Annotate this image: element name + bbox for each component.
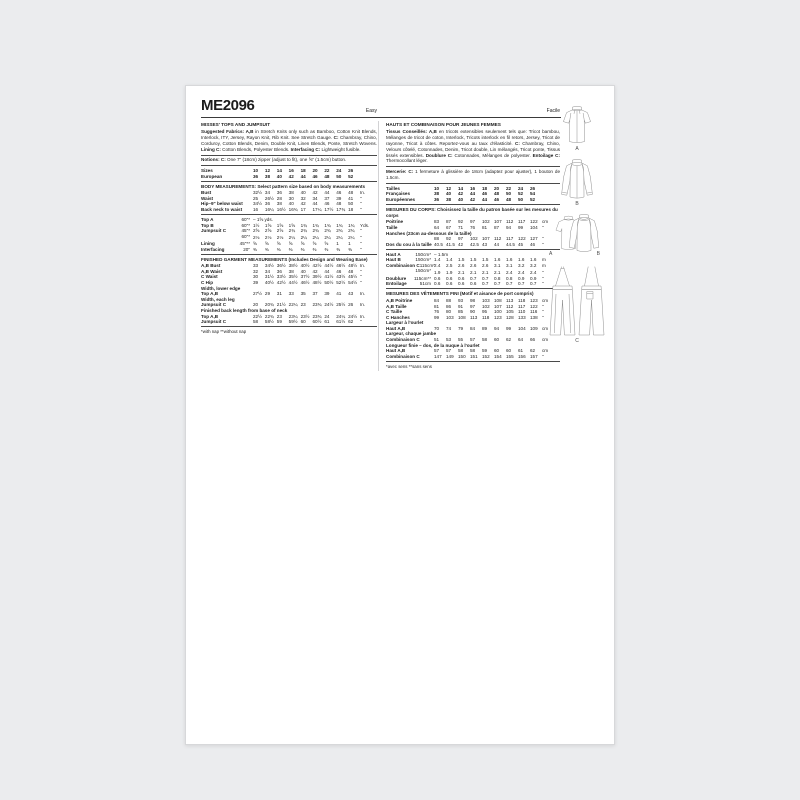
table-cell: 2¾ <box>324 228 336 234</box>
table-cell: 52 <box>348 174 360 180</box>
table-cell: 152 <box>482 354 494 360</box>
table-cell: ⅜ <box>277 247 289 253</box>
table-cell: ⅜ <box>324 247 336 253</box>
unit-cell: " <box>360 228 377 234</box>
table-cell: 2.6 <box>482 263 494 269</box>
table-cell: 0.7 <box>530 281 542 287</box>
table-cell: 147 <box>434 354 446 360</box>
table-cell: 156 <box>518 354 530 360</box>
table-cell: 48 <box>506 197 518 203</box>
row-label-area: Entoilage51cm <box>386 281 434 287</box>
section-rule <box>386 249 560 250</box>
text-run: Cotton Blends, Polyester Blends. <box>221 147 291 152</box>
table-cell: 46 <box>530 242 542 248</box>
yardage-table-english: Top A60"*– 1⅝ yds.Top B60"*1½1⅝1⅝1⅝1¾1¾1… <box>201 217 377 252</box>
table-cell: 0.6 <box>446 281 458 287</box>
bold-lead-in: Notions: C: <box>201 157 226 162</box>
table-row: Jumpsuit C5858½5959½6060½6161½62" <box>201 319 377 325</box>
table-cell: 16 <box>253 207 265 213</box>
table-cell: 50 <box>518 197 530 203</box>
row-label: Combinaison C <box>386 354 420 360</box>
fabric-width-label: 20" <box>243 247 253 253</box>
table-cell: 42.5 <box>470 242 482 248</box>
view-c-label: C <box>546 338 608 344</box>
bold-lead-in: Doublure C: <box>426 153 453 158</box>
section-rule <box>386 288 560 289</box>
garment-title-english: MISSES' TOPS AND JUMPSUIT <box>201 122 377 128</box>
table-cell: 3.2 <box>530 263 542 269</box>
finished-measurements-heading-french: MESURES DES VÊTEMENTS FINI (Motif et ais… <box>386 291 560 297</box>
table-row: Back neck to waist1616¼16½16¾1717¼17½17¾… <box>201 207 377 213</box>
row-label-area: Interfacing20" <box>201 247 253 253</box>
table-cell: 46 <box>494 197 506 203</box>
table-cell: 60½ <box>312 319 324 325</box>
table-cell: 17¾ <box>336 207 348 213</box>
row-label: Jumpsuit C <box>201 319 226 325</box>
row-label-area: European <box>201 174 253 180</box>
section-rule <box>201 254 377 255</box>
difficulty-label-french: Facile <box>386 108 560 114</box>
table-cell: 38 <box>446 197 458 203</box>
section-rule <box>386 166 560 167</box>
table-cell: 2¾ <box>312 228 324 234</box>
text-run: Thermocollant léger. <box>386 158 428 163</box>
difficulty-label-english: Easy <box>201 108 377 114</box>
table-row: Européennes363840424446485052 <box>386 197 560 203</box>
bold-lead-in: Interfacing C: <box>291 147 321 152</box>
table-cell: 0.7 <box>518 281 530 287</box>
table-cell: 2⅝ <box>277 228 289 234</box>
table-cell: 38 <box>265 174 277 180</box>
bold-lead-in: Mercerie: C: <box>386 169 413 174</box>
column-divider <box>378 121 379 371</box>
table-cell: 50 <box>336 174 348 180</box>
row-label: Dos du cou à la taille <box>386 242 432 248</box>
notions-english: Notions: C: One 7" (18cm) zipper (adjust… <box>201 157 377 163</box>
fabric-width-label: 51cm <box>420 281 434 287</box>
table-cell: 44 <box>482 197 494 203</box>
notions-french: Mercerie: C: 1 fermeture à glissière de … <box>386 169 560 181</box>
table-cell: 36 <box>253 174 265 180</box>
section-rule <box>386 204 560 205</box>
table-cell: 0.6 <box>434 281 446 287</box>
table-cell: 52 <box>530 197 542 203</box>
finished-measurements-table-english: A,B Bust3334½36½38½40½42½44½46½48½In.A,B… <box>201 263 377 325</box>
table-cell: 3.1 <box>494 263 506 269</box>
row-label-area: 150cm* <box>386 268 434 274</box>
table-cell: 40 <box>458 197 470 203</box>
table-cell: 43 <box>482 242 494 248</box>
table-cell: 17½ <box>324 207 336 213</box>
table-cell: 17¼ <box>312 207 324 213</box>
table-cell: 154 <box>494 354 506 360</box>
table-cell: 41.5 <box>446 242 458 248</box>
text-run: One 7" (18cm) zipper (adjust to fit), on… <box>226 157 346 162</box>
table-cell: 2¾ <box>289 228 301 234</box>
text-run: 1 fermeture à glissière de 18cm (adaptez… <box>386 169 560 180</box>
table-cell: 0.6 <box>458 281 470 287</box>
table-cell: 17 <box>301 207 313 213</box>
unit-cell: " <box>360 319 377 325</box>
table-cell: 58 <box>253 319 265 325</box>
table-cell: 2.4 <box>434 263 446 269</box>
suggested-fabrics-english: Suggested Fabrics: A,B in Stretch Knits … <box>201 129 377 153</box>
yardage-table-french: Haut A150cm*– 1.5mHaut B150cm*1.41.41.51… <box>386 252 560 287</box>
body-measurements-heading-english: BODY MEASUREMENTS: Select pattern size b… <box>201 184 377 190</box>
table-cell: 155 <box>506 354 518 360</box>
table-cell: 42 <box>289 174 301 180</box>
section-rule <box>201 326 377 327</box>
garment-line-drawings: A B <box>546 104 608 344</box>
table-row: 60"*2⅛2⅛2⅛2¼2¼2¼2¼2¼2¼" <box>201 234 377 241</box>
table-cell: ⅜ <box>301 247 313 253</box>
table-cell: 0.7 <box>494 281 506 287</box>
fabric-width-label: 60"* <box>241 234 253 240</box>
row-label: Back neck to waist <box>201 207 242 213</box>
header-rule <box>201 117 561 118</box>
suggested-fabrics-french: Tissus Conseillés: A,B en tricots extens… <box>386 129 560 164</box>
table-cell: 60 <box>301 319 313 325</box>
nap-footnote-english: *with nap **without nap <box>201 329 377 335</box>
table-row: Entoilage51cm0.60.60.60.60.70.70.70.70.7… <box>386 281 560 287</box>
section-rule <box>201 181 377 182</box>
bold-lead-in: Suggested Fabrics: A,B <box>201 129 254 134</box>
table-cell: 0.7 <box>482 281 494 287</box>
unit-cell: " <box>542 354 560 360</box>
finished-measurements-heading-english: FINISHED GARMENT MEASUREMENTS (Includes … <box>201 257 377 263</box>
row-label-area: Européennes <box>386 197 434 203</box>
table-cell: 46 <box>312 174 324 180</box>
pattern-envelope-back-page: ME2096 Easy Facile MISSES' TOPS AND JUMP… <box>185 85 615 745</box>
row-label-area: 60"* <box>201 234 253 240</box>
row-label-area: Combinaison C <box>386 354 434 360</box>
body-measurements-table-english: Bust32½3436384042444648In.Waist2526½2830… <box>201 190 377 212</box>
table-cell: ⅜ <box>289 247 301 253</box>
table-cell: 59½ <box>289 319 301 325</box>
table-cell: ⅜ <box>348 247 360 253</box>
section-rule <box>386 361 560 362</box>
table-cell: 2.6 <box>458 263 470 269</box>
table-cell: 40 <box>277 174 289 180</box>
table-cell: 61 <box>324 319 336 325</box>
table-cell: 2⅝ <box>253 228 265 234</box>
size-table-english: Sizes101214161820222426European363840424… <box>201 168 377 179</box>
table-cell: 150 <box>458 354 470 360</box>
table-cell: 151 <box>470 354 482 360</box>
table-cell: 3.2 <box>518 263 530 269</box>
views-ab-labels: A B <box>546 251 608 257</box>
table-cell: 16¾ <box>289 207 301 213</box>
table-cell: 16¼ <box>265 207 277 213</box>
views-ab-front-drawing: A B <box>546 212 608 257</box>
table-cell: 44 <box>494 242 506 248</box>
garment-title-french: HAUTS ET COMBINAISON POUR JEUNES FEMMES <box>386 122 560 128</box>
view-b-back-drawing: B <box>546 157 608 207</box>
unit-cell: " <box>360 207 377 213</box>
table-row: Dos du cou à la taille40.541.54242.54344… <box>386 242 560 248</box>
table-cell: 3.1 <box>506 263 518 269</box>
finished-measurements-table-french: A,B Poitrine84889398103108113118123cmA,B… <box>386 298 560 360</box>
row-label: Interfacing <box>201 247 224 253</box>
table-cell: 2.6 <box>470 263 482 269</box>
text-run: Lightweight fusible. <box>320 147 360 152</box>
tops-ab-front-view-illustration <box>552 212 602 254</box>
bold-lead-in: Lining C: <box>201 147 221 152</box>
table-cell: ⅜ <box>253 247 265 253</box>
table-cell: 59 <box>277 319 289 325</box>
section-rule <box>201 214 377 215</box>
table-cell: 2.5 <box>446 263 458 269</box>
french-column: HAUTS ET COMBINAISON POUR JEUNES FEMMES … <box>386 122 560 369</box>
table-cell: ⅜ <box>336 247 348 253</box>
jumpsuit-c-illustration <box>548 264 606 338</box>
table-cell: ⅜ <box>265 247 277 253</box>
table-cell: 45 <box>518 242 530 248</box>
row-label: Entoilage <box>386 281 407 287</box>
table-cell: 42 <box>470 197 482 203</box>
table-cell: ⅜ <box>312 247 324 253</box>
row-label-area: Back neck to waist <box>201 207 253 213</box>
table-cell: 149 <box>446 354 458 360</box>
row-label: European <box>201 174 222 180</box>
text-run: Cotonnades, Mélanges de polyester. <box>453 153 533 158</box>
unit-cell: " <box>360 247 377 253</box>
top-a-back-view-illustration <box>558 104 596 146</box>
view-c-jumpsuit-drawing: C <box>546 264 608 344</box>
view-b-label: B <box>546 201 608 207</box>
nap-footnote-french: *avec sens **sans sens <box>386 364 560 370</box>
table-cell: 16½ <box>277 207 289 213</box>
table-cell: 2¾ <box>336 228 348 234</box>
table-cell: 2¾ <box>348 228 360 234</box>
table-cell: 0.7 <box>506 281 518 287</box>
page-header: ME2096 Easy Facile <box>201 97 600 116</box>
table-cell: 48 <box>324 174 336 180</box>
table-cell: 18 <box>348 207 360 213</box>
table-row: European363840424446485052 <box>201 174 377 180</box>
row-label-area: Dos du cou à la taille <box>386 242 434 248</box>
view-a-label: A <box>546 146 608 152</box>
section-rule <box>386 183 560 184</box>
size-table-french: Tailles101214161820222426Françaises38404… <box>386 186 560 203</box>
table-cell: 44 <box>301 174 313 180</box>
section-rule <box>201 155 377 156</box>
row-label: Européennes <box>386 197 415 203</box>
body-measurements-table-french: Poitrine83879297102107112117122cmTaille6… <box>386 219 560 247</box>
table-cell: 58½ <box>265 319 277 325</box>
fabric-width-label: 150cm* <box>415 268 434 274</box>
bold-lead-in: Tissus Conseillés: A,B <box>386 129 437 134</box>
table-cell: 2⅝ <box>265 228 277 234</box>
table-cell: 62 <box>348 319 360 325</box>
table-cell: 61½ <box>336 319 348 325</box>
row-label-area: Jumpsuit C <box>201 319 253 325</box>
table-row: Interfacing20"⅜⅜⅜⅜⅜⅜⅜⅜⅜" <box>201 247 377 253</box>
table-cell: 42 <box>458 242 470 248</box>
section-rule <box>201 165 377 166</box>
body-measurements-heading-french: MESURES DU CORPS: Choisissez la taille d… <box>386 207 560 219</box>
view-a-back-drawing: A <box>546 104 608 152</box>
table-cell: 44.5 <box>506 242 518 248</box>
table-cell: 2¾ <box>301 228 313 234</box>
view-b-front-label: B <box>597 251 600 257</box>
top-b-back-view-illustration <box>558 157 596 201</box>
english-column: MISSES' TOPS AND JUMPSUIT Suggested Fabr… <box>201 122 377 335</box>
table-row: Combinaison C147149150151152154155156157… <box>386 354 560 360</box>
view-a-front-label: A <box>549 251 552 257</box>
table-cell: 36 <box>434 197 446 203</box>
table-cell: 0.6 <box>470 281 482 287</box>
table-row: 150cm*1.91.92.12.12.12.12.42.42.4" <box>386 268 560 275</box>
table-cell: 157 <box>530 354 542 360</box>
table-cell: 40.5 <box>434 242 446 248</box>
